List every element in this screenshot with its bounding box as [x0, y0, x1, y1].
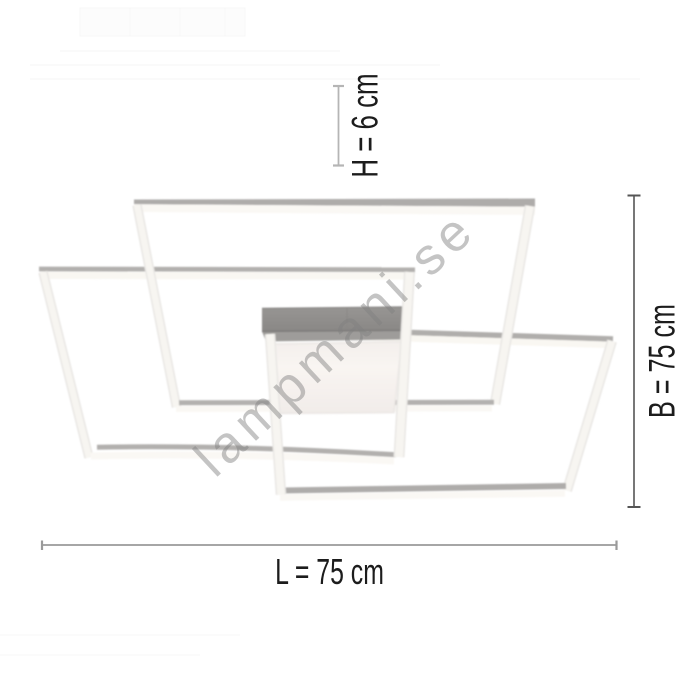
- svg-text:H = 6 cm: H = 6 cm: [344, 73, 386, 177]
- svg-text:B = 75 cm: B = 75 cm: [641, 304, 683, 418]
- svg-text:L = 75 cm: L = 75 cm: [275, 551, 384, 592]
